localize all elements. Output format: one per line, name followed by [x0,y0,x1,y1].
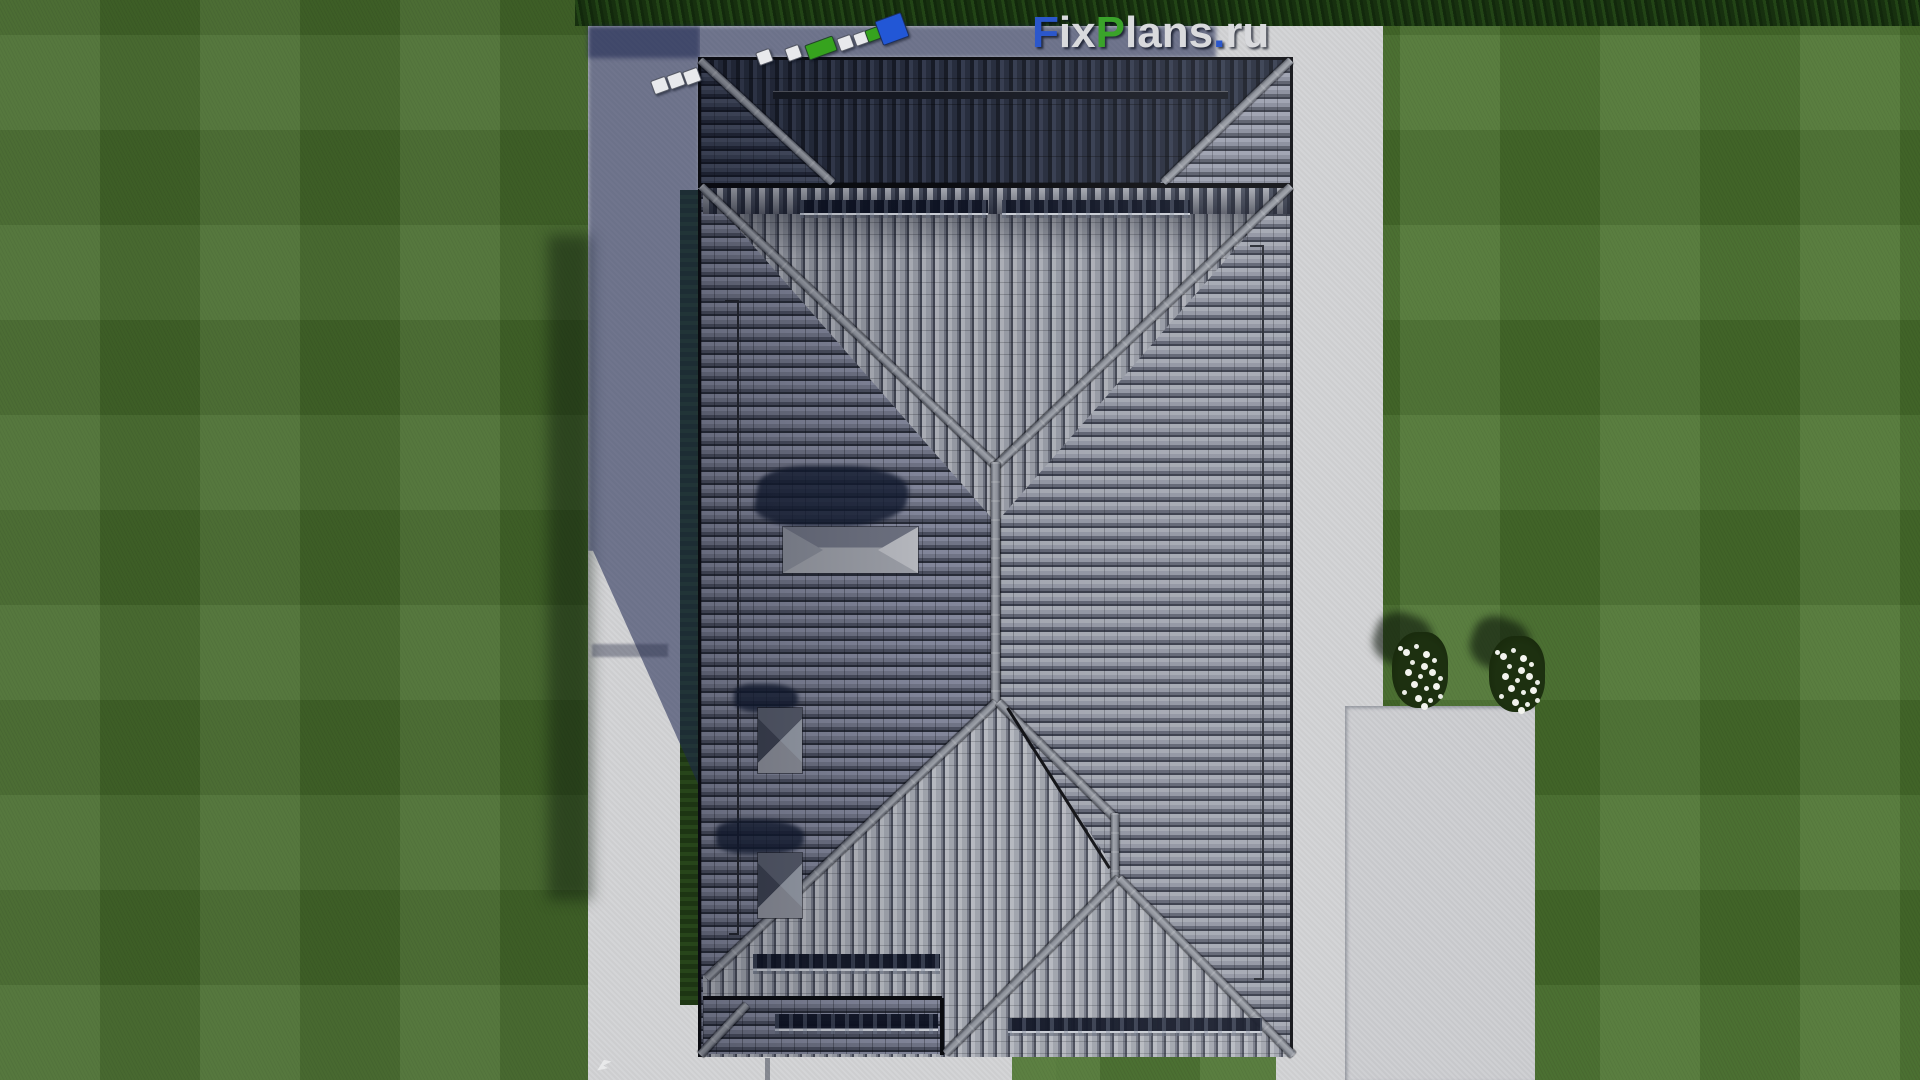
watermark-letter: x [1071,8,1095,57]
snow-guard-rail [753,954,940,974]
lightning-wire [1262,245,1264,980]
watermark-letter: . [1213,8,1225,57]
flower-bush [1390,628,1450,714]
chimney-shadow [751,466,914,526]
watermark-letter: P [1096,8,1125,57]
small-chimney-cap [758,708,802,773]
walkway-corner [1276,1057,1296,1080]
bush-foliage [1489,636,1545,712]
watermark-letter: u [1242,8,1269,57]
doormat-shadow [592,644,668,657]
aerial-house-render: FixPlans.ru [0,0,1920,1080]
patio [1345,706,1535,1080]
house-shadow-on-grass [548,235,592,900]
watermark: FixPlans.ru [1032,8,1269,58]
white-flowers [1495,650,1500,655]
left-eave-line [703,996,942,1000]
snow-guard-rail [775,1014,938,1034]
small-chimney-cap [758,853,802,918]
downspout-mark [765,1058,770,1080]
bush-foliage [1392,632,1448,708]
watermark-letter: r [1225,8,1242,57]
white-flowers [1398,646,1403,651]
garage-roof-section [701,60,1290,183]
large-chimney-cap [783,527,918,573]
watermark-letter: a [1137,8,1161,57]
garage-ridge [773,91,1228,99]
snow-guard-rail [800,200,988,218]
watermark-letter: i [1059,8,1071,57]
snow-guard-rail [1008,1018,1262,1036]
ridge-line [1111,813,1119,879]
watermark-letter: s [1189,8,1213,57]
watermark-letter: l [1125,8,1137,57]
snow-guard-rail [1002,200,1190,218]
ridge-tile-row [703,188,1290,214]
eave-step-line [940,998,944,1055]
chimney-shadow [716,820,804,854]
walkway-bottom [588,1055,1012,1080]
watermark-letter: F [1032,8,1059,57]
flower-bush [1487,632,1547,718]
house-roof [698,57,1293,1057]
watermark-letter: n [1162,8,1189,57]
ridge-line [991,462,1000,705]
